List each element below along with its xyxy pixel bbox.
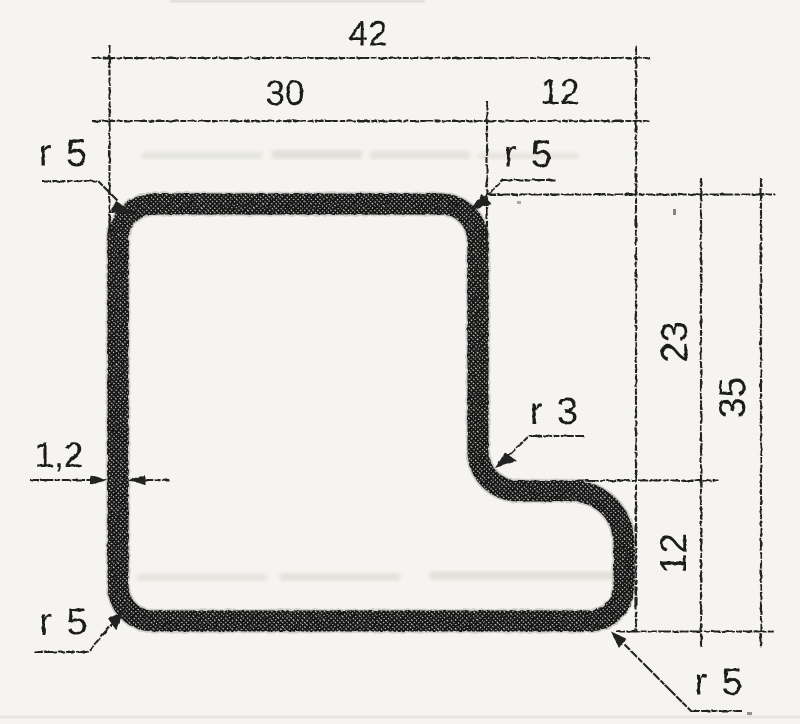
svg-text:r 5: r 5: [39, 602, 89, 644]
svg-text:1,2: 1,2: [35, 436, 84, 475]
svg-text:12: 12: [653, 533, 694, 574]
svg-text:r 5: r 5: [504, 134, 554, 176]
svg-text:r 5: r 5: [694, 662, 744, 704]
svg-text:42: 42: [349, 15, 388, 54]
svg-text:30: 30: [266, 74, 305, 113]
svg-text:r 5: r 5: [39, 133, 89, 175]
svg-text:12: 12: [541, 73, 580, 112]
svg-text:23: 23: [654, 321, 695, 362]
svg-text:r 3: r 3: [530, 391, 580, 433]
svg-text:35: 35: [712, 377, 753, 418]
